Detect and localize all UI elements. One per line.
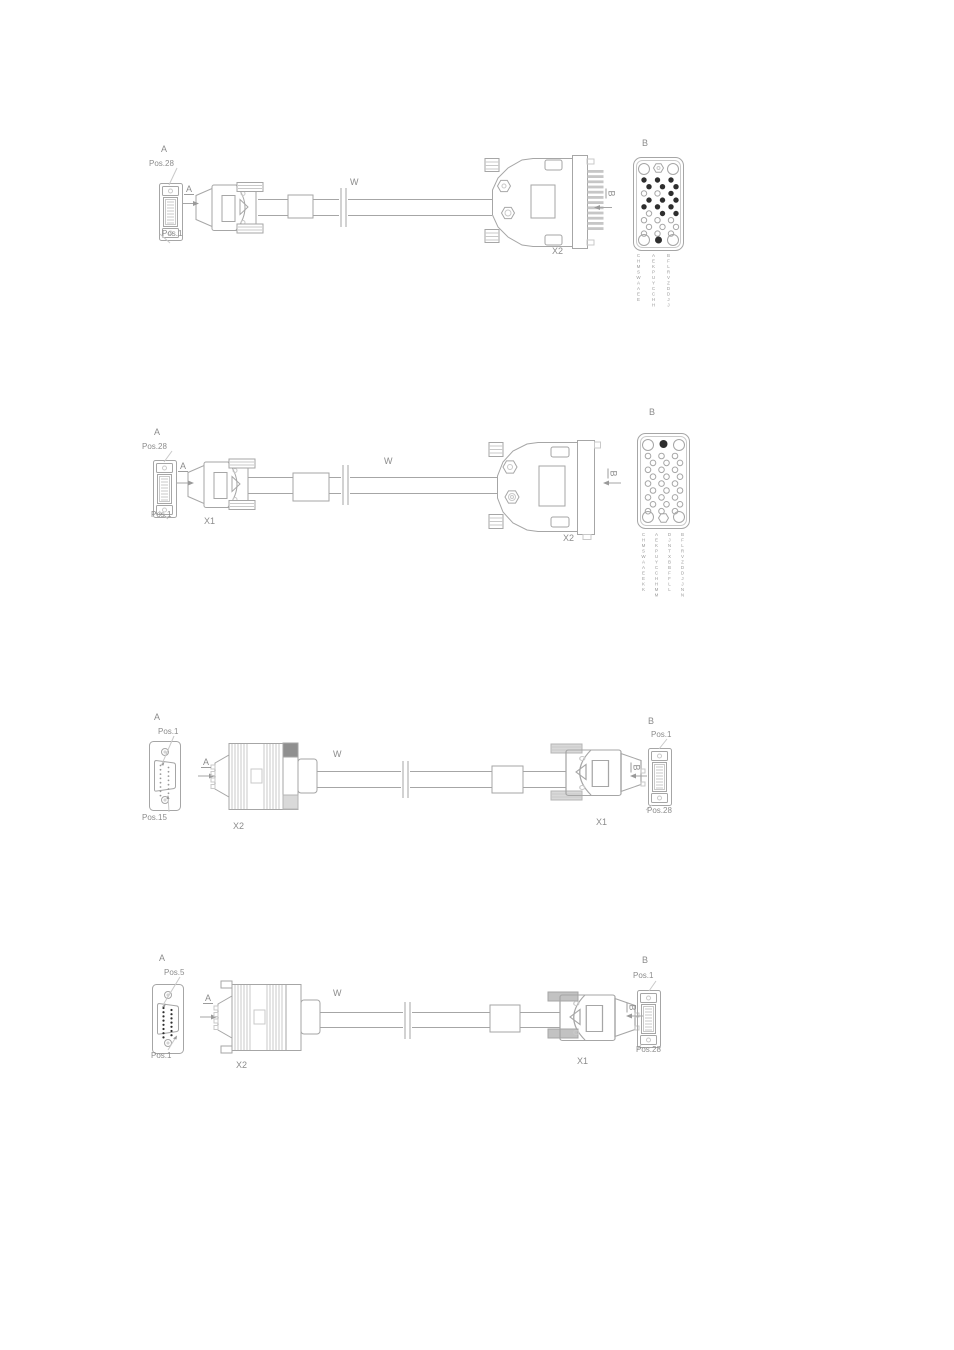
- pin-dot-open: [672, 495, 678, 501]
- pin-dot-open: [645, 495, 651, 501]
- pos-top-label-1: Pos.28: [149, 159, 174, 169]
- pin-column-labels-2a: CHMSWAAEEKK: [641, 532, 646, 593]
- pin-column-labels-2c: DJNTXBBFFLL: [667, 532, 672, 593]
- pos-bottom-label-1: Pos.1: [162, 229, 182, 239]
- pin-dot-open: [650, 488, 656, 494]
- diagram-linework: [0, 0, 954, 1350]
- pin-column-labels-2b: AEKPUYCCHHMM: [654, 532, 659, 598]
- ferrite-1: [288, 195, 313, 218]
- pin-dot-filled: [660, 211, 665, 216]
- view-b-title-1: B: [642, 138, 648, 148]
- view-b-title-4: B: [642, 955, 648, 965]
- pos-top-label-3: Pos.1: [158, 727, 178, 737]
- pin-dot-filled: [641, 204, 646, 209]
- cable-drawing-1: [160, 156, 684, 251]
- section-arrow-b-1: B: [606, 188, 617, 198]
- pos-b-bottom-label-3: Pos.28: [647, 806, 672, 816]
- pin-dot-open: [646, 211, 651, 216]
- pin-dot-open: [641, 231, 646, 236]
- pin-dot-open: [659, 508, 665, 514]
- pin-column-labels-1b: AEKPUYCCHH: [651, 253, 656, 308]
- pin-dot-filled: [668, 191, 673, 196]
- connector-x1-label-4: X1: [577, 1056, 588, 1066]
- section-arrow-a-3: A: [201, 757, 211, 768]
- pin-dot-open: [645, 481, 651, 487]
- section-arrow-a-4: A: [203, 993, 213, 1004]
- pin-dot-filled: [673, 184, 678, 189]
- mdr-face-b-3: [649, 749, 672, 806]
- pin-dot-open: [655, 218, 660, 223]
- pin-dot-open: [659, 481, 665, 487]
- pin-dot-open: [668, 218, 673, 223]
- da15-male-face-3: [150, 742, 181, 811]
- pin-dot-open: [641, 218, 646, 223]
- pin-dot-open: [650, 474, 656, 480]
- pin-dot-filled: [660, 184, 665, 189]
- connector-x2-label-4: X2: [236, 1060, 247, 1070]
- cable-drawing-2: [154, 434, 690, 540]
- view-b-title-3: B: [648, 716, 654, 726]
- pin-dot-open: [672, 467, 678, 473]
- pin-dot-filled: [673, 197, 678, 202]
- view-a-title-4: A: [159, 953, 165, 963]
- pin-dot-open: [645, 453, 651, 459]
- pin-dot-filled: [646, 184, 651, 189]
- view-a-title-1: A: [161, 144, 167, 154]
- pin-dot-open: [677, 488, 683, 494]
- pos-b-top-label-4: Pos.1: [633, 971, 653, 981]
- view-a-title-3: A: [154, 712, 160, 722]
- pin-dot-open: [660, 224, 665, 229]
- pin-dot-open: [659, 495, 665, 501]
- section-arrow-b-2: B: [608, 468, 619, 478]
- pin-dot-open: [677, 502, 683, 508]
- pos-top-label-2: Pos.28: [142, 442, 167, 452]
- pin-dot-filled: [668, 204, 673, 209]
- pin-dot-open: [677, 460, 683, 466]
- section-arrow-b-4: B: [627, 1002, 638, 1012]
- connector-x1-label-3: X1: [596, 817, 607, 827]
- connector-x2-label-1: X2: [552, 246, 563, 256]
- pin-dot-filled: [660, 197, 665, 202]
- pin-dot-filled: [641, 177, 646, 182]
- pin-dot-open: [672, 453, 678, 459]
- mdr-face-a-2: [154, 461, 177, 518]
- pin-dot-open: [650, 460, 656, 466]
- pin-dot-open: [650, 502, 656, 508]
- pin-dot-filled: [668, 177, 673, 182]
- pos-b-top-label-3: Pos.1: [651, 730, 671, 740]
- pin-dot-filled: [646, 197, 651, 202]
- connector-x2-label-2: X2: [563, 533, 574, 543]
- dsub-hood-1: [485, 156, 604, 249]
- vga-plug-3: [211, 743, 317, 810]
- connector-x2-label-3: X2: [233, 821, 244, 831]
- dsub-hood-2: [489, 441, 601, 540]
- mdr-face-b-4: [638, 991, 661, 1048]
- pin-dot-open: [664, 460, 670, 466]
- pin-dot-filled: [655, 204, 660, 209]
- view-a-title-2: A: [154, 427, 160, 437]
- pin-dot-open: [655, 191, 660, 196]
- view-b-title-2: B: [649, 407, 655, 417]
- pin-dot-open: [677, 474, 683, 480]
- mdr-plug-4: [548, 992, 639, 1041]
- pos-bottom-label-3: Pos.15: [142, 813, 167, 823]
- pos-b-bottom-label-4: Pos.28: [636, 1045, 661, 1055]
- pin-face-view-2: [638, 434, 690, 529]
- pin-dot-open: [659, 453, 665, 459]
- vga-plug-4: [214, 981, 320, 1053]
- section-arrow-a-1: A: [184, 184, 194, 195]
- pin-dot-open: [664, 488, 670, 494]
- pin-dot-open: [664, 474, 670, 480]
- da15-female-face-4: [153, 985, 184, 1054]
- pin-dot-open: [646, 224, 651, 229]
- section-arrow-a-2: A: [178, 461, 188, 472]
- connector-x1-label-2: X1: [204, 516, 215, 526]
- cable-label-2: W: [384, 456, 393, 466]
- pos-top-label-4: Pos.5: [164, 968, 184, 978]
- pin-dot-open: [659, 467, 665, 473]
- cable-drawing-4: [153, 977, 661, 1054]
- ferrite-3: [492, 766, 523, 793]
- section-arrow-b-3: B: [631, 762, 642, 772]
- pin-dot-open: [655, 231, 660, 236]
- pin-face-view-1: [634, 158, 684, 251]
- pin-dot-open: [673, 224, 678, 229]
- ferrite-2: [293, 473, 329, 501]
- pos-bottom-label-4: Pos.1: [151, 1051, 171, 1061]
- pin-dot-open: [672, 481, 678, 487]
- manual-page: A Pos.28 A Pos.1 W X2 B B CHMSWAAEE AEKP…: [0, 0, 954, 1350]
- ferrite-4: [490, 1005, 520, 1032]
- cable-label-4: W: [333, 988, 342, 998]
- pin-column-labels-1a: CHMSWAAEE: [636, 253, 641, 303]
- cable-label-1: W: [350, 177, 359, 187]
- pin-dot-filled: [673, 211, 678, 216]
- pin-dot-filled: [655, 177, 660, 182]
- pos-bottom-label-2: Pos.1: [151, 510, 171, 520]
- pin-dot-open: [664, 502, 670, 508]
- pin-dot-open: [641, 191, 646, 196]
- pin-dot-open: [645, 467, 651, 473]
- cable-label-3: W: [333, 749, 342, 759]
- cable-drawing-3: [150, 736, 672, 812]
- pin-column-labels-2d: BFLRVZDDJJNN: [680, 532, 685, 598]
- pin-column-labels-1c: BFLRVZDDJJ: [666, 253, 671, 308]
